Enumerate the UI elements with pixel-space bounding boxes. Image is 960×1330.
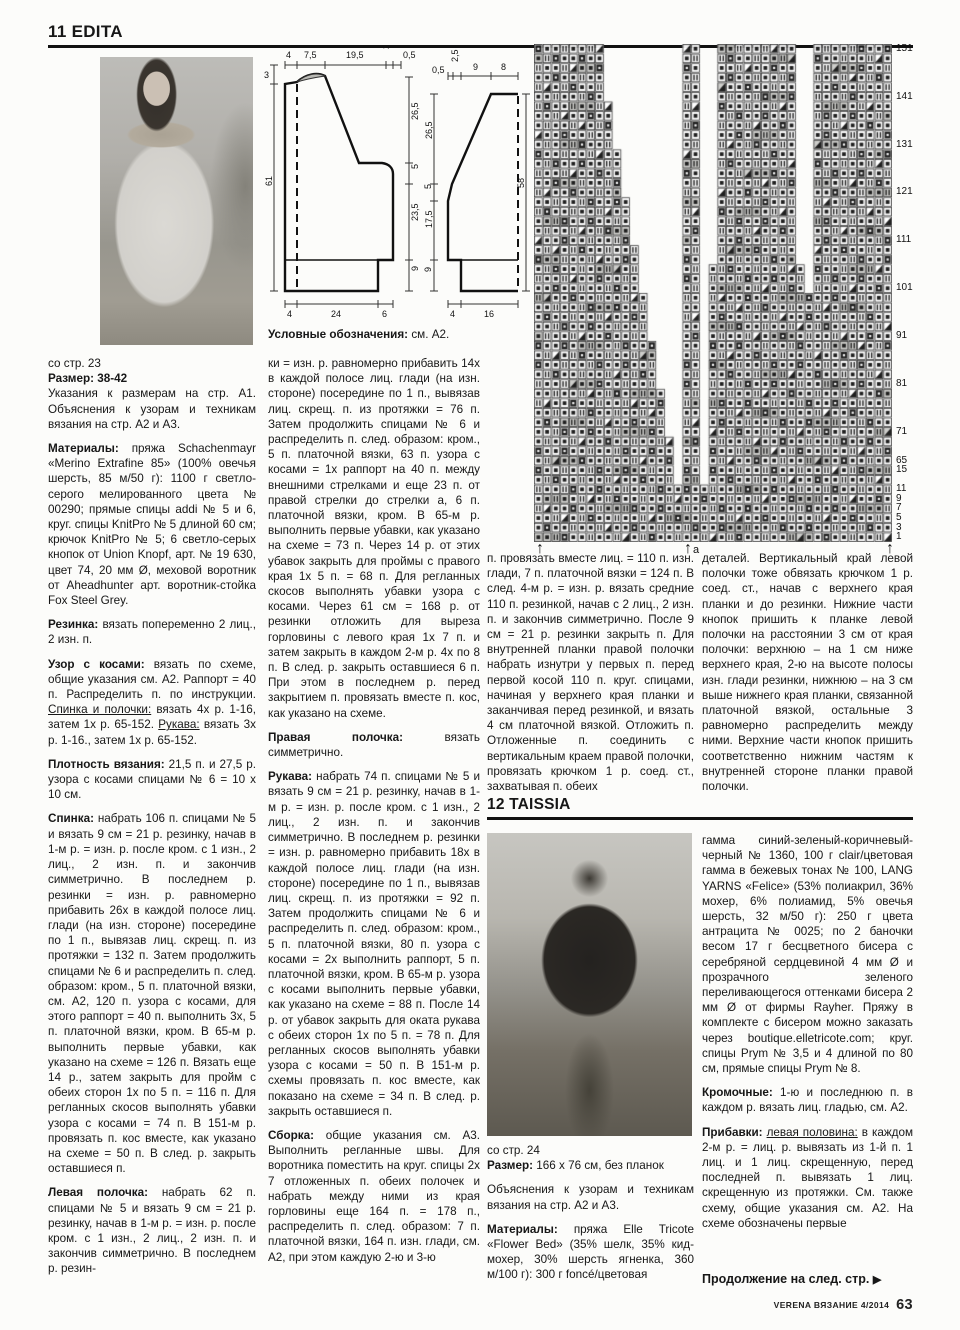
knitting-chart: 15114113112111110191817165151197531 ↑ ↑a…	[534, 44, 948, 584]
paragraph: ки = изн. р. равномерно прибавить 14х в …	[268, 356, 480, 721]
paragraph: Рукава: набрать 74 п. спицами № 5 и вяза…	[268, 769, 480, 1119]
page-number: 63	[896, 1297, 913, 1313]
dim-label: 5	[423, 184, 433, 189]
chart-row-number: 111	[896, 235, 911, 245]
photo-shawl-model	[487, 833, 692, 1136]
chart-row-number: 131	[896, 140, 913, 150]
paragraph: Плотность вязания: 21,5 п. и 27,5 р. узо…	[48, 757, 256, 803]
instruction-column-2: ки = изн. р. равномерно прибавить 14х в …	[268, 356, 480, 1311]
dim-label: 0,5	[432, 65, 445, 75]
continuation-note: Продолжение на след. стр. ▶	[702, 1272, 913, 1286]
dim-label: 3	[264, 70, 269, 80]
chart-row-number: 71	[896, 427, 907, 437]
paragraph: Прибавки: левая половина: в каждом 2-м р…	[702, 1125, 913, 1231]
pattern-schematics: 4 7,5 19,5 2,5 0,5 3 61 26,5 5 23,5 9 4 …	[256, 46, 532, 324]
paragraph: Сборка: общие указания см. А3. Выполнить…	[268, 1128, 480, 1265]
continuation-text: Продолжение на след. стр.	[702, 1272, 869, 1286]
article-12-title: 12 TAISSIA	[487, 796, 571, 813]
paragraph: гамма синий-зеленый-коричневый-черный № …	[702, 833, 913, 1076]
chart-row-number: 15	[896, 465, 907, 475]
dim-label: 2,5	[381, 46, 391, 49]
instruction-column-4-top: деталей. Вертикальный край левой полочки…	[702, 551, 913, 794]
dim-label: 8	[501, 62, 506, 72]
paragraph: деталей. Вертикальный край левой полочки…	[702, 551, 913, 794]
dim-label: 58	[516, 178, 526, 188]
paragraph: Резинка: вязать попеременно 2 лиц., 2 из…	[48, 617, 256, 647]
paragraph: Материалы: пряжа Elle Tricote «Flower Be…	[487, 1222, 694, 1283]
chart-row-number: 81	[896, 379, 907, 389]
paragraph: п. провязать вместе лиц. = 110 п. изн. г…	[487, 551, 694, 794]
dim-label: 24	[331, 309, 341, 319]
sleeve-piece-outline	[448, 94, 518, 291]
chart-row-number: 91	[896, 331, 907, 341]
instruction-column-3-top: п. провязать вместе лиц. = 110 п. изн. г…	[487, 551, 694, 794]
paragraph: Кромочные: 1-ю и последнюю п. в каждом р…	[702, 1085, 913, 1115]
paragraph: Объяснения к узорам и техникам вязания н…	[487, 1182, 694, 1212]
chart-grid	[534, 44, 892, 542]
paragraph: Материалы: пряжа Schachenmayr «Merino Ex…	[48, 441, 256, 608]
chart-row-number: 101	[896, 283, 913, 293]
paragraph: Условные обозначения: см. А2.	[268, 327, 480, 342]
dim-label: 7,5	[304, 50, 317, 60]
dim-label: 4	[287, 309, 292, 319]
paragraph: Левая полочка: набрать 62 п. спицами № 5…	[48, 1185, 256, 1276]
dim-label: 4	[450, 309, 455, 319]
paragraph: Правая полочка: вязать симметрично.	[268, 730, 480, 760]
dim-label: 0,5	[403, 50, 416, 60]
dim-label: 9	[410, 266, 420, 271]
dim-label: 26,5	[410, 102, 420, 120]
dim-label: 19,5	[346, 50, 364, 60]
paragraph: Размер: 166 х 76 см, без планок	[487, 1158, 694, 1173]
paragraph: Размер: 38-42	[48, 371, 256, 386]
paragraph: со стр. 24	[487, 1143, 694, 1158]
instruction-column-3-bottom: со стр. 24Размер: 166 х 76 см, без плано…	[487, 1143, 694, 1311]
paragraph: Спинка: набрать 106 п. спицами № 5 и вяз…	[48, 811, 256, 1176]
chart-row-number: 151	[896, 44, 913, 54]
paragraph: со стр. 23	[48, 356, 256, 371]
page-footer: VERENA ВЯЗАНИЕ 4/2014 63	[620, 1297, 913, 1313]
dim-label: 9	[473, 62, 478, 72]
instruction-column-1: со стр. 23Размер: 38-42Указания к размер…	[48, 356, 256, 1311]
photo-cardigan-model	[100, 57, 253, 345]
magazine-page: 11 EDITA 4 7,5 19,5 2,5 0,5 3 61 26,5	[0, 0, 960, 1330]
chart-row-number: 121	[896, 187, 913, 197]
dim-label: 9	[423, 267, 433, 272]
chart-legend-note: Условные обозначения: см. А2.	[268, 327, 480, 347]
dim-label: 26,5	[424, 121, 434, 139]
dim-label: 2,5	[450, 49, 460, 62]
chart-row-number: 141	[896, 92, 913, 102]
instruction-column-4-bottom: гамма синий-зеленый-коричневый-черный № …	[702, 833, 913, 1265]
dim-label: 17,5	[424, 210, 434, 228]
dim-label: 16	[484, 309, 494, 319]
dim-label: 61	[264, 176, 274, 186]
dim-label: 6	[382, 309, 387, 319]
continuation-arrow-icon: ▶	[873, 1274, 881, 1286]
body-piece-outline	[285, 74, 393, 291]
article-11-title: 11 EDITA	[48, 22, 123, 41]
magazine-issue-label: VERENA ВЯЗАНИЕ 4/2014	[774, 1300, 890, 1310]
dim-label: 5	[410, 164, 420, 169]
dim-label: 4	[286, 50, 291, 60]
paragraph: Узор с косами: вязать по схеме, общие ук…	[48, 657, 256, 748]
schematic-drawing: 4 7,5 19,5 2,5 0,5 3 61 26,5 5 23,5 9 4 …	[256, 46, 532, 324]
article-12-header: 12 TAISSIA	[487, 796, 913, 820]
chart-row-number: 1	[896, 532, 902, 542]
dim-label: 23,5	[410, 203, 420, 221]
paragraph: Указания к размерам на стр. А1. Объяснен…	[48, 386, 256, 432]
